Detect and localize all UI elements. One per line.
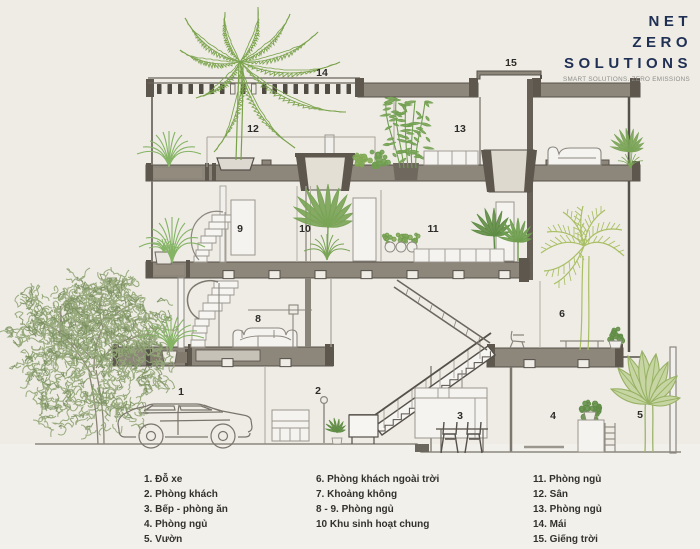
svg-text:6: 6 bbox=[559, 308, 565, 320]
svg-text:14: 14 bbox=[316, 67, 328, 79]
svg-text:12. Sân: 12. Sân bbox=[533, 489, 568, 500]
svg-text:5: 5 bbox=[637, 409, 643, 421]
svg-text:2: 2 bbox=[315, 385, 321, 397]
svg-text:4: 4 bbox=[550, 410, 556, 422]
svg-text:8: 8 bbox=[255, 313, 261, 325]
svg-text:NET: NET bbox=[649, 13, 693, 30]
svg-text:7. Khoảng không: 7. Khoảng không bbox=[316, 489, 397, 500]
svg-text:3. Bếp - phòng ăn: 3. Bếp - phòng ăn bbox=[144, 503, 228, 515]
svg-text:10 Khu sinh hoạt chung: 10 Khu sinh hoạt chung bbox=[316, 519, 429, 530]
svg-text:5. Vườn: 5. Vườn bbox=[144, 534, 182, 545]
svg-text:9: 9 bbox=[237, 223, 243, 235]
svg-text:14. Mái: 14. Mái bbox=[533, 519, 567, 530]
svg-text:ZERO: ZERO bbox=[632, 34, 692, 51]
svg-text:SOLUTIONS: SOLUTIONS bbox=[564, 55, 692, 72]
svg-text:1. Đỗ xe: 1. Đỗ xe bbox=[144, 472, 183, 485]
svg-text:13. Phòng ngủ: 13. Phòng ngủ bbox=[533, 504, 602, 515]
svg-text:15. Giếng trời: 15. Giếng trời bbox=[533, 533, 598, 545]
svg-text:1: 1 bbox=[178, 386, 184, 398]
svg-text:13: 13 bbox=[454, 123, 466, 135]
svg-text:2. Phòng khách: 2. Phòng khách bbox=[144, 489, 218, 500]
svg-text:6. Phòng khách ngoài trời: 6. Phòng khách ngoài trời bbox=[316, 474, 439, 485]
svg-text:SMART SOLUTIONS. ZERO EMISSION: SMART SOLUTIONS. ZERO EMISSIONS bbox=[563, 76, 690, 83]
svg-text:3: 3 bbox=[457, 410, 463, 422]
svg-text:10: 10 bbox=[299, 223, 311, 235]
svg-text:11: 11 bbox=[427, 223, 438, 235]
svg-text:11. Phòng ngủ: 11. Phòng ngủ bbox=[533, 474, 601, 485]
svg-text:8 - 9. Phòng ngủ: 8 - 9. Phòng ngủ bbox=[316, 504, 394, 515]
svg-text:4. Phòng ngủ: 4. Phòng ngủ bbox=[144, 519, 207, 530]
svg-text:15: 15 bbox=[505, 57, 517, 69]
svg-text:12: 12 bbox=[247, 123, 259, 135]
